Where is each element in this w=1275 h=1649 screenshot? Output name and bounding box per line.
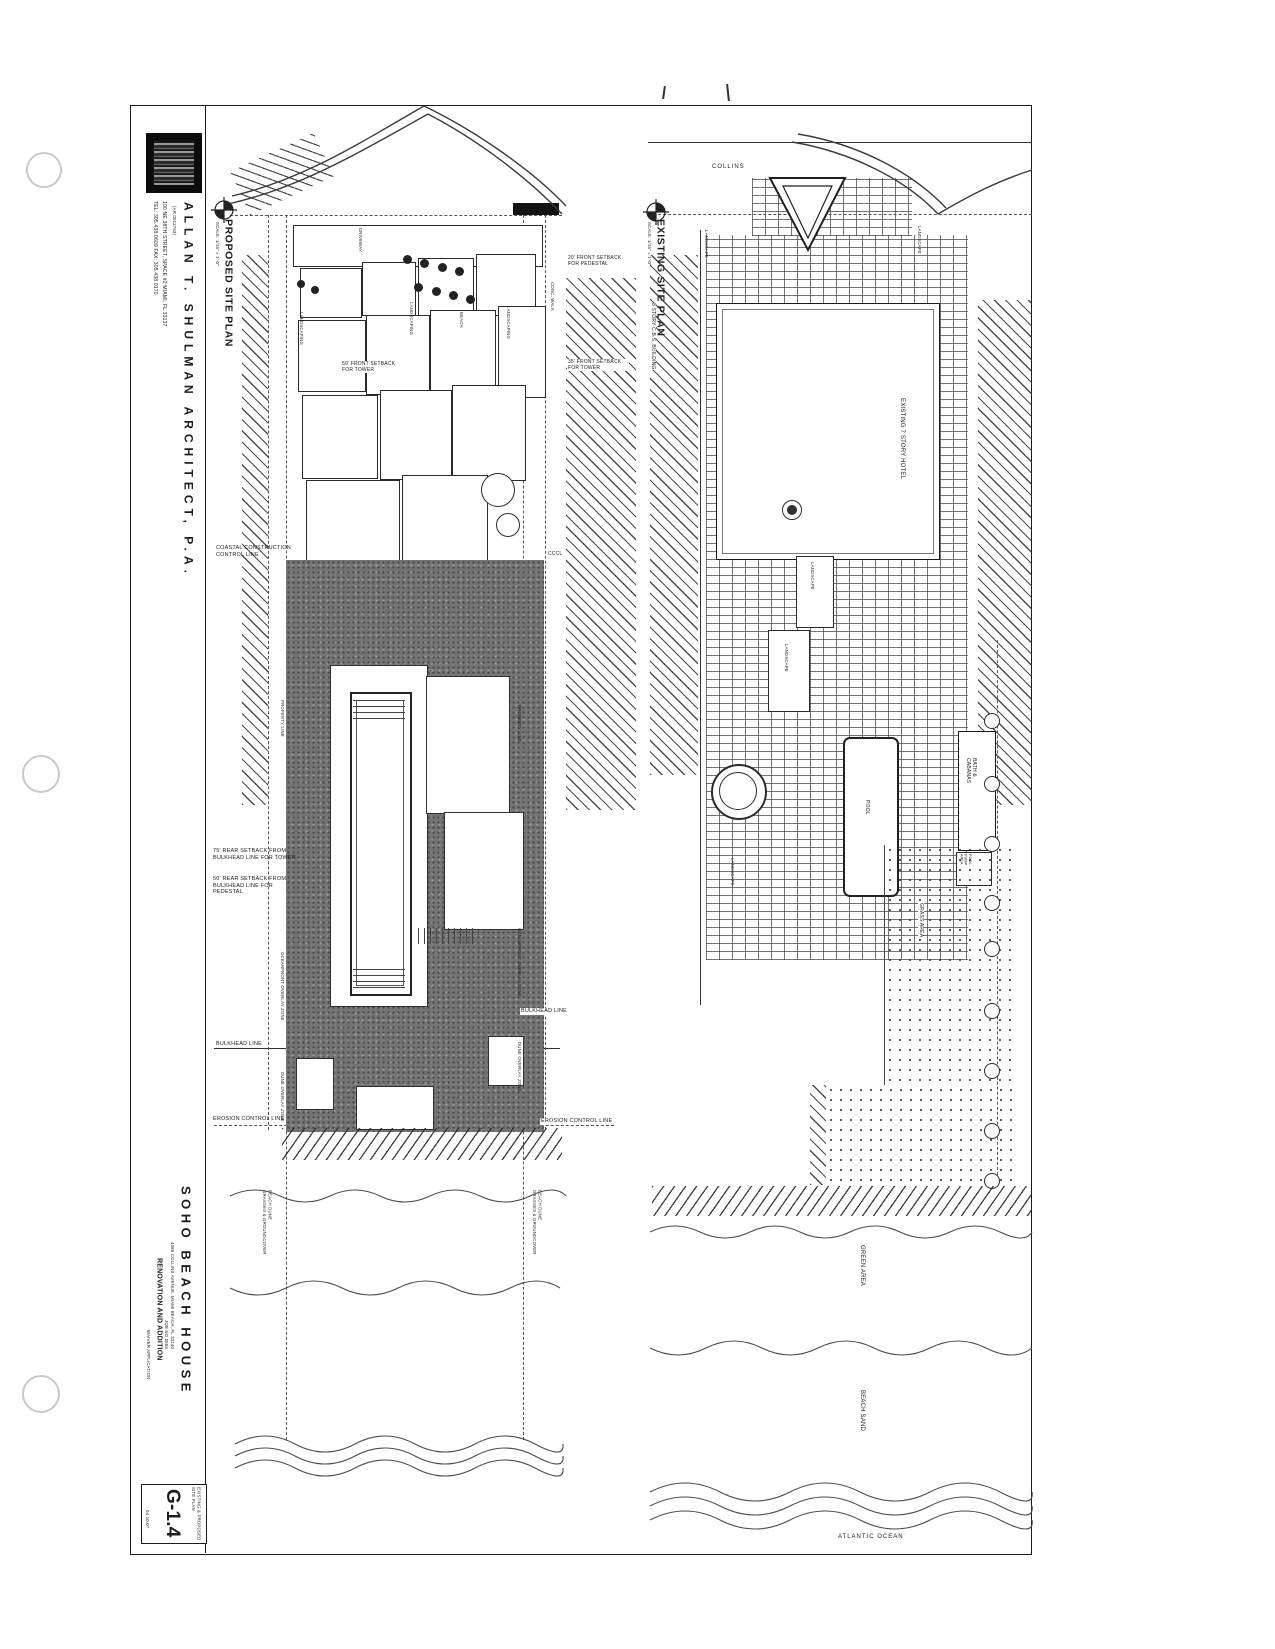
north-symbol (211, 197, 237, 223)
scanned-drawing-sheet: ALLAN T. SHULMAN ARCHITECT, P.A. (AR 001… (0, 0, 1275, 1649)
linework-overlay (0, 0, 1275, 1649)
north-symbol (643, 199, 669, 225)
entry-court-triangle (770, 178, 845, 250)
